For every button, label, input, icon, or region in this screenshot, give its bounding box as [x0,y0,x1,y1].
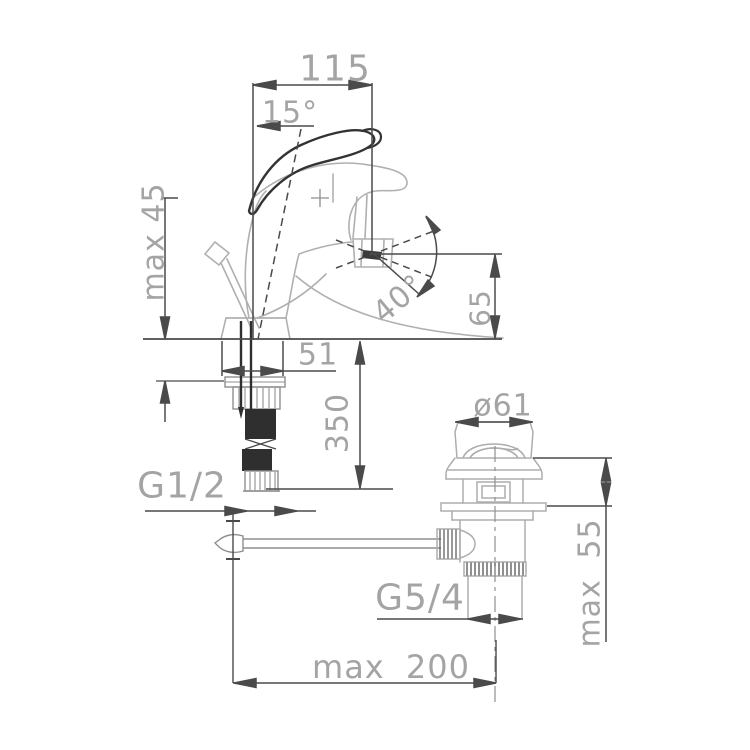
technical-drawing-canvas: 115 15° max 45 40° 65 51 350 G1/2 ø61 ma… [0,0,750,750]
dim-label-65: 65 [464,289,497,327]
faucet-shank-assembly [225,321,285,491]
popup-rod-linkage [215,535,441,553]
rod-ball-end [215,535,243,553]
dim-label-115: 115 [299,49,371,90]
faucet-body-outline [205,163,503,339]
dim-g12 [145,507,316,516]
faucet-handle [249,129,381,214]
spout-outline [254,163,407,240]
drawing-linework [0,0,750,750]
dim-label-max55: max 55 [573,518,608,647]
lift-rod-knob [205,242,229,265]
dim-label-max200: max 200 [312,648,470,686]
dim-label-o61: ø61 [473,389,533,424]
dim-label-15deg: 15° [262,96,318,131]
dim-label-51: 51 [298,338,338,373]
dim-label-max45: max 45 [137,182,172,301]
threaded-hose-section-2 [242,449,272,471]
dim-label-g12: G1/2 [137,466,227,507]
dim-label-350: 350 [321,393,356,453]
lower-flange [441,503,546,511]
dim-label-g54: G5/4 [375,578,465,619]
spout-marks [311,189,329,207]
